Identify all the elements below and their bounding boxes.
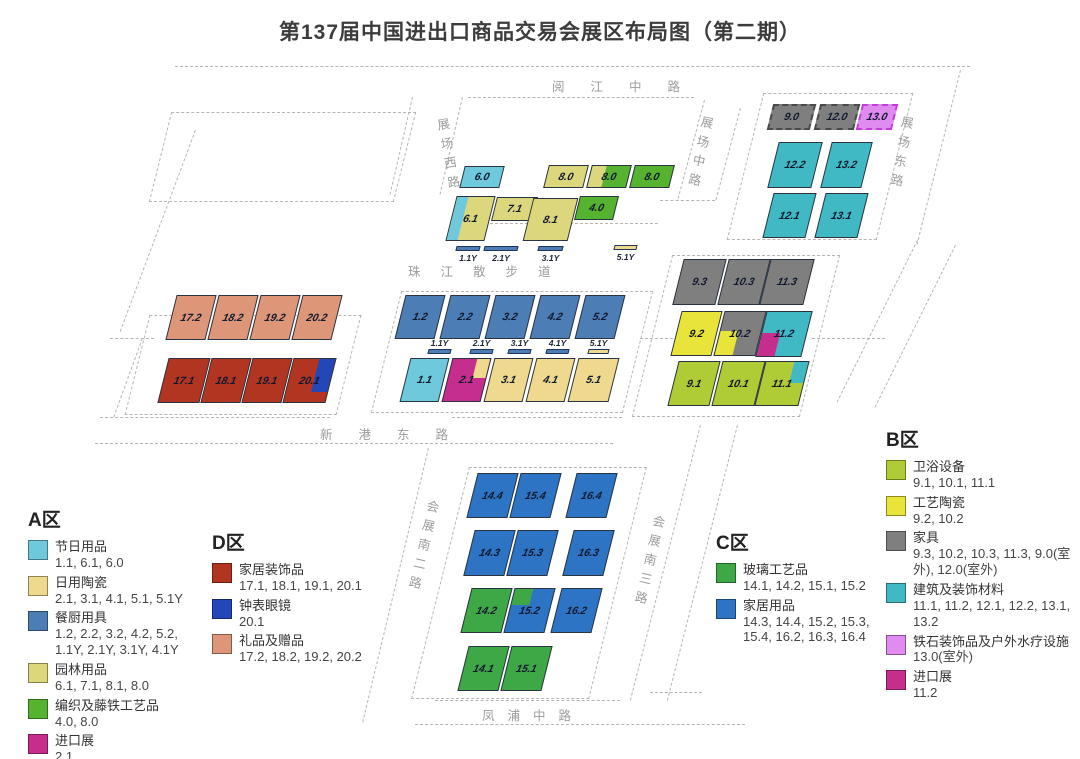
legend-item-text: 家具9.3, 10.2, 10.3, 11.3, 9.0(室外), 12.0(室… [913,530,1076,578]
hall-label: 20.2 [305,312,328,324]
hall-label: 12.1 [778,210,801,222]
hall-label: 19.1 [255,375,278,387]
legend-item: 钟表眼镜20.1 [212,598,384,630]
legend-zone-d-items: 家居装饰品17.1, 18.1, 19.1, 20.1钟表眼镜20.1礼品及赠品… [212,562,384,665]
annex-bar-2.1Y [483,246,518,251]
legend-item: 园林用品6.1, 7.1, 8.1, 8.0 [28,662,196,694]
road-dash-line [468,97,694,98]
hall-color-patch [511,589,533,605]
hall-label: 17.2 [179,312,202,324]
road-label-zhanchang-zhong: 展场中路 [682,114,717,194]
legend-item: 家居用品14.3, 14.4, 15.2, 15.3, 15.4, 16.2, … [716,598,876,646]
legend-item: 玻璃工艺品14.1, 14.2, 15.1, 15.2 [716,562,876,594]
legend-item-text: 进口展11.2 [913,669,952,701]
legend-item-codes: 9.3, 10.2, 10.3, 11.3, 9.0(室外), 12.0(室外) [913,546,1076,578]
legend-item-text: 钟表眼镜20.1 [239,598,291,630]
hall-label: 7.1 [506,203,524,215]
annex-bar-label: 2.1Y [466,338,498,348]
road-dash-line [95,443,613,444]
hall-label: 16.3 [577,547,600,559]
hall-label: 16.4 [580,490,603,502]
legend-zone-b-title: B区 [886,425,1076,452]
road-dash-line [837,240,918,403]
hall-label: 10.1 [727,378,750,390]
annex-bar-label: 5.1Y [610,252,642,262]
legend-item: 建筑及装饰材料11.1, 11.2, 12.1, 12.2, 13.1, 13.… [886,582,1076,630]
hall-label: 9.3 [691,276,709,288]
legend-item-codes: 11.2 [913,685,952,701]
hall-label: 9.1 [685,378,703,390]
annex-bar-3.1Y [507,349,531,354]
legend-item: 编织及藤铁工艺品4.0, 8.0 [28,698,196,730]
legend-item-text: 玻璃工艺品14.1, 14.2, 15.1, 15.2 [743,562,866,594]
hall-label: 8.1 [542,214,560,226]
legend-item-text: 建筑及装饰材料11.1, 11.2, 12.1, 12.2, 13.1, 13.… [913,582,1076,630]
legend-item-text: 家居用品14.3, 14.4, 15.2, 15.3, 15.4, 16.2, … [743,598,876,646]
hall-label: 3.1 [500,374,518,386]
legend-item-name: 礼品及赠品 [239,633,362,649]
page-title: 第137届中国进出口商品交易会展区布局图（第二期） [0,16,1080,46]
road-label-fengpu: 凤浦中路 [482,705,584,724]
hall-8.0: 8.0 [543,165,589,188]
legend-item-codes: 1.1, 6.1, 6.0 [55,555,124,571]
road-label-zhujiang: 珠江散步道 [408,261,571,280]
legend-color-swatch [886,583,906,603]
hall-9.0: 9.0 [767,104,816,130]
legend-zone-d: D区 家居装饰品17.1, 18.1, 19.1, 20.1钟表眼镜20.1礼品… [212,528,384,669]
hall-label: 11.1 [771,378,794,390]
legend-color-swatch [28,611,48,631]
annex-bar-5.1Y [587,349,609,354]
road-label-huizhan-nan3: 会展南三路 [628,513,668,612]
legend-zone-c-title: C区 [716,528,876,555]
legend-item-name: 铁石装饰品及户外水疗设施 [913,634,1069,650]
legend-item-text: 餐厨用具1.2, 2.2, 3.2, 4.2, 5.2, 1.1Y, 2.1Y,… [55,610,196,658]
road-dash-line [100,417,330,418]
legend-item-codes: 2.1 [55,749,94,759]
hall-label: 12.0 [825,111,848,123]
legend-item: 工艺陶瓷9.2, 10.2 [886,495,1076,527]
legend-item-codes: 4.0, 8.0 [55,714,159,730]
legend-item-name: 编织及藤铁工艺品 [55,698,159,714]
legend-item-codes: 20.1 [239,614,291,630]
hall-label: 9.0 [783,111,801,123]
annex-bar-4.1Y [545,349,569,354]
legend-item-text: 节日用品1.1, 6.1, 6.0 [55,539,124,571]
hall-4.0: 4.0 [574,196,619,220]
annex-bar-5.1Y [613,245,637,250]
legend-item-name: 家具 [913,530,1076,546]
hall-label: 3.2 [501,311,519,323]
legend-item-name: 进口展 [55,733,94,749]
hall-label: 5.2 [591,311,609,323]
legend-color-swatch [212,563,232,583]
hall-label: 13.2 [835,159,858,171]
legend-color-swatch [212,599,232,619]
annex-bar-label: 2.1Y [485,253,517,263]
legend-item-name: 日用陶瓷 [55,575,183,591]
hall-label: 14.4 [481,490,504,502]
hall-6.1: 6.1 [445,196,495,241]
road-label-huizhan-nan2: 会展南二路 [402,498,442,597]
legend-zone-a-items: 节日用品1.1, 6.1, 6.0日用陶瓷2.1, 3.1, 4.1, 5.1,… [28,539,196,759]
legend-item-name: 钟表眼镜 [239,598,291,614]
legend-color-swatch [886,460,906,480]
legend-color-swatch [28,699,48,719]
legend-item-codes: 17.2, 18.2, 19.2, 20.2 [239,649,362,665]
legend-zone-d-title: D区 [212,528,384,555]
road-label-yuejiang: 阅江中路 [552,76,706,95]
road-dash-line [490,223,658,224]
legend-color-swatch [886,635,906,655]
hall-label: 10.3 [732,276,755,288]
hall-label: 4.2 [546,311,564,323]
legend-item-text: 礼品及赠品17.2, 18.2, 19.2, 20.2 [239,633,362,665]
legend-item: 铁石装饰品及户外水疗设施13.0(室外) [886,634,1076,666]
legend-color-swatch [886,531,906,551]
hall-label: 6.1 [462,213,480,225]
hall-label: 12.2 [783,159,806,171]
legend-item: 餐厨用具1.2, 2.2, 3.2, 4.2, 5.2, 1.1Y, 2.1Y,… [28,610,196,658]
road-dash-line [660,200,715,201]
annex-bar-2.1Y [469,349,493,354]
hall-label: 4.0 [588,202,606,214]
annex-bar-label: 1.1Y [424,338,456,348]
legend-item-codes: 1.2, 2.2, 3.2, 4.2, 5.2, 1.1Y, 2.1Y, 3.1… [55,626,196,658]
road-label-xingang: 新港东路 [320,424,474,443]
hall-label: 20.1 [298,375,321,387]
legend-item-text: 日用陶瓷2.1, 3.1, 4.1, 5.1, 5.1Y [55,575,183,607]
hall-label: 8.0 [600,171,618,183]
legend-item-name: 玻璃工艺品 [743,562,866,578]
hall-label: 6.0 [473,171,491,183]
legend-item-codes: 11.1, 11.2, 12.1, 12.2, 13.1, 13.2 [913,598,1076,630]
canton-fair-layout-map: 第137届中国进出口商品交易会展区布局图（第二期） 阅江中路 珠江散步道 新港东… [0,0,1080,759]
legend-item: 家具9.3, 10.2, 10.3, 11.3, 9.0(室外), 12.0(室… [886,530,1076,578]
legend-item-name: 家居装饰品 [239,562,362,578]
hall-label: 14.3 [478,547,501,559]
annex-bar-label: 4.1Y [542,338,574,348]
hall-label: 14.1 [472,663,495,675]
hall-label: 9.2 [688,328,706,340]
hall-label: 16.2 [565,605,588,617]
road-dash-line [916,70,961,245]
hall-8.1: 8.1 [523,198,579,241]
legend-color-swatch [886,670,906,690]
legend-color-swatch [28,663,48,683]
legend-zone-c: C区 玻璃工艺品14.1, 14.2, 15.1, 15.2家居用品14.3, … [716,528,876,649]
hall-6.0: 6.0 [459,166,504,188]
hall-label: 15.1 [515,663,538,675]
legend-item-name: 进口展 [913,669,952,685]
legend-item-codes: 6.1, 7.1, 8.1, 8.0 [55,678,149,694]
hall-label: 1.1 [416,374,434,386]
hall-label: 15.4 [524,490,547,502]
legend-item-text: 园林用品6.1, 7.1, 8.1, 8.0 [55,662,149,694]
hall-label: 2.1 [458,374,476,386]
annex-bar-label: 5.1Y [583,338,615,348]
road-dash-line [812,338,885,339]
legend-zone-b: B区 卫浴设备9.1, 10.1, 11.1工艺陶瓷9.2, 10.2家具9.3… [886,425,1076,705]
legend-item-codes: 9.1, 10.1, 11.1 [913,475,995,491]
legend-item: 进口展11.2 [886,669,1076,701]
hall-label: 18.1 [214,375,237,387]
legend-item: 家居装饰品17.1, 18.1, 19.1, 20.1 [212,562,384,594]
road-dash-line [415,724,745,725]
hall-label: 5.1 [585,374,603,386]
hall-label: 15.2 [518,605,541,617]
hall-label: 14.2 [475,605,498,617]
hall-label: 11.2 [773,328,796,340]
legend-item-codes: 9.2, 10.2 [913,511,965,527]
legend-item-codes: 14.1, 14.2, 15.1, 15.2 [743,578,866,594]
legend-item-text: 工艺陶瓷9.2, 10.2 [913,495,965,527]
legend-item-name: 节日用品 [55,539,124,555]
legend-color-swatch [28,576,48,596]
hall-label: 8.0 [557,171,575,183]
annex-bar-1.1Y [455,246,480,251]
hall-label: 10.2 [728,328,751,340]
legend-item: 进口展2.1 [28,733,196,759]
hall-8.0: 8.0 [586,165,632,188]
hall-8.0: 8.0 [629,165,675,188]
legend-color-swatch [212,634,232,654]
legend-zone-c-items: 玻璃工艺品14.1, 14.2, 15.1, 15.2家居用品14.3, 14.… [716,562,876,645]
legend-item-text: 铁石装饰品及户外水疗设施13.0(室外) [913,634,1069,666]
legend-color-swatch [716,563,736,583]
annex-bar-3.1Y [537,246,563,251]
hall-label: 11.3 [776,276,799,288]
block-outline [149,112,416,202]
road-dash-line [715,108,741,200]
legend-item-name: 园林用品 [55,662,149,678]
hall-label: 19.2 [263,312,286,324]
legend-zone-a: A区 节日用品1.1, 6.1, 6.0日用陶瓷2.1, 3.1, 4.1, 5… [28,505,196,759]
legend-item-text: 编织及藤铁工艺品4.0, 8.0 [55,698,159,730]
legend-item-name: 建筑及装饰材料 [913,582,1076,598]
hall-label: 15.3 [521,547,544,559]
legend-color-swatch [28,734,48,754]
legend-color-swatch [716,599,736,619]
legend-item: 礼品及赠品17.2, 18.2, 19.2, 20.2 [212,633,384,665]
legend-zone-b-items: 卫浴设备9.1, 10.1, 11.1工艺陶瓷9.2, 10.2家具9.3, 1… [886,459,1076,701]
hall-label: 2.2 [456,311,474,323]
legend-item-codes: 2.1, 3.1, 4.1, 5.1, 5.1Y [55,591,183,607]
annex-bar-label: 3.1Y [535,253,567,263]
legend-zone-a-title: A区 [28,505,196,532]
legend-item-codes: 17.1, 18.1, 19.1, 20.1 [239,578,362,594]
road-dash-line [435,700,620,701]
legend-item-text: 进口展2.1 [55,733,94,759]
road-dash-line [175,66,970,67]
legend-item-text: 家居装饰品17.1, 18.1, 19.1, 20.1 [239,562,362,594]
annex-bar-1.1Y [427,349,451,354]
legend-item-name: 卫浴设备 [913,459,995,475]
road-dash-line [650,692,702,693]
legend-color-swatch [28,540,48,560]
hall-label: 18.2 [221,312,244,324]
legend-item-name: 家居用品 [743,598,876,614]
hall-label: 4.1 [542,374,560,386]
annex-bar-label: 1.1Y [452,253,484,263]
road-dash-line [875,245,956,408]
hall-12.0: 12.0 [814,104,860,130]
hall-label: 8.0 [643,171,661,183]
hall-label: 13.0 [865,111,888,123]
road-dash-line [452,417,622,418]
legend-item: 卫浴设备9.1, 10.1, 11.1 [886,459,1076,491]
legend-item: 节日用品1.1, 6.1, 6.0 [28,539,196,571]
annex-bar-label: 3.1Y [504,338,536,348]
hall-label: 13.1 [830,210,853,222]
legend-item-codes: 13.0(室外) [913,649,1069,665]
legend-item-codes: 14.3, 14.4, 15.2, 15.3, 15.4, 16.2, 16.3… [743,614,876,646]
legend-item-name: 工艺陶瓷 [913,495,965,511]
legend-color-swatch [886,496,906,516]
hall-label: 17.1 [172,375,195,387]
legend-item-name: 餐厨用具 [55,610,196,626]
hall-13.0: 13.0 [856,104,898,130]
hall-label: 1.2 [411,311,429,323]
legend-item: 日用陶瓷2.1, 3.1, 4.1, 5.1, 5.1Y [28,575,196,607]
legend-item-text: 卫浴设备9.1, 10.1, 11.1 [913,459,995,491]
